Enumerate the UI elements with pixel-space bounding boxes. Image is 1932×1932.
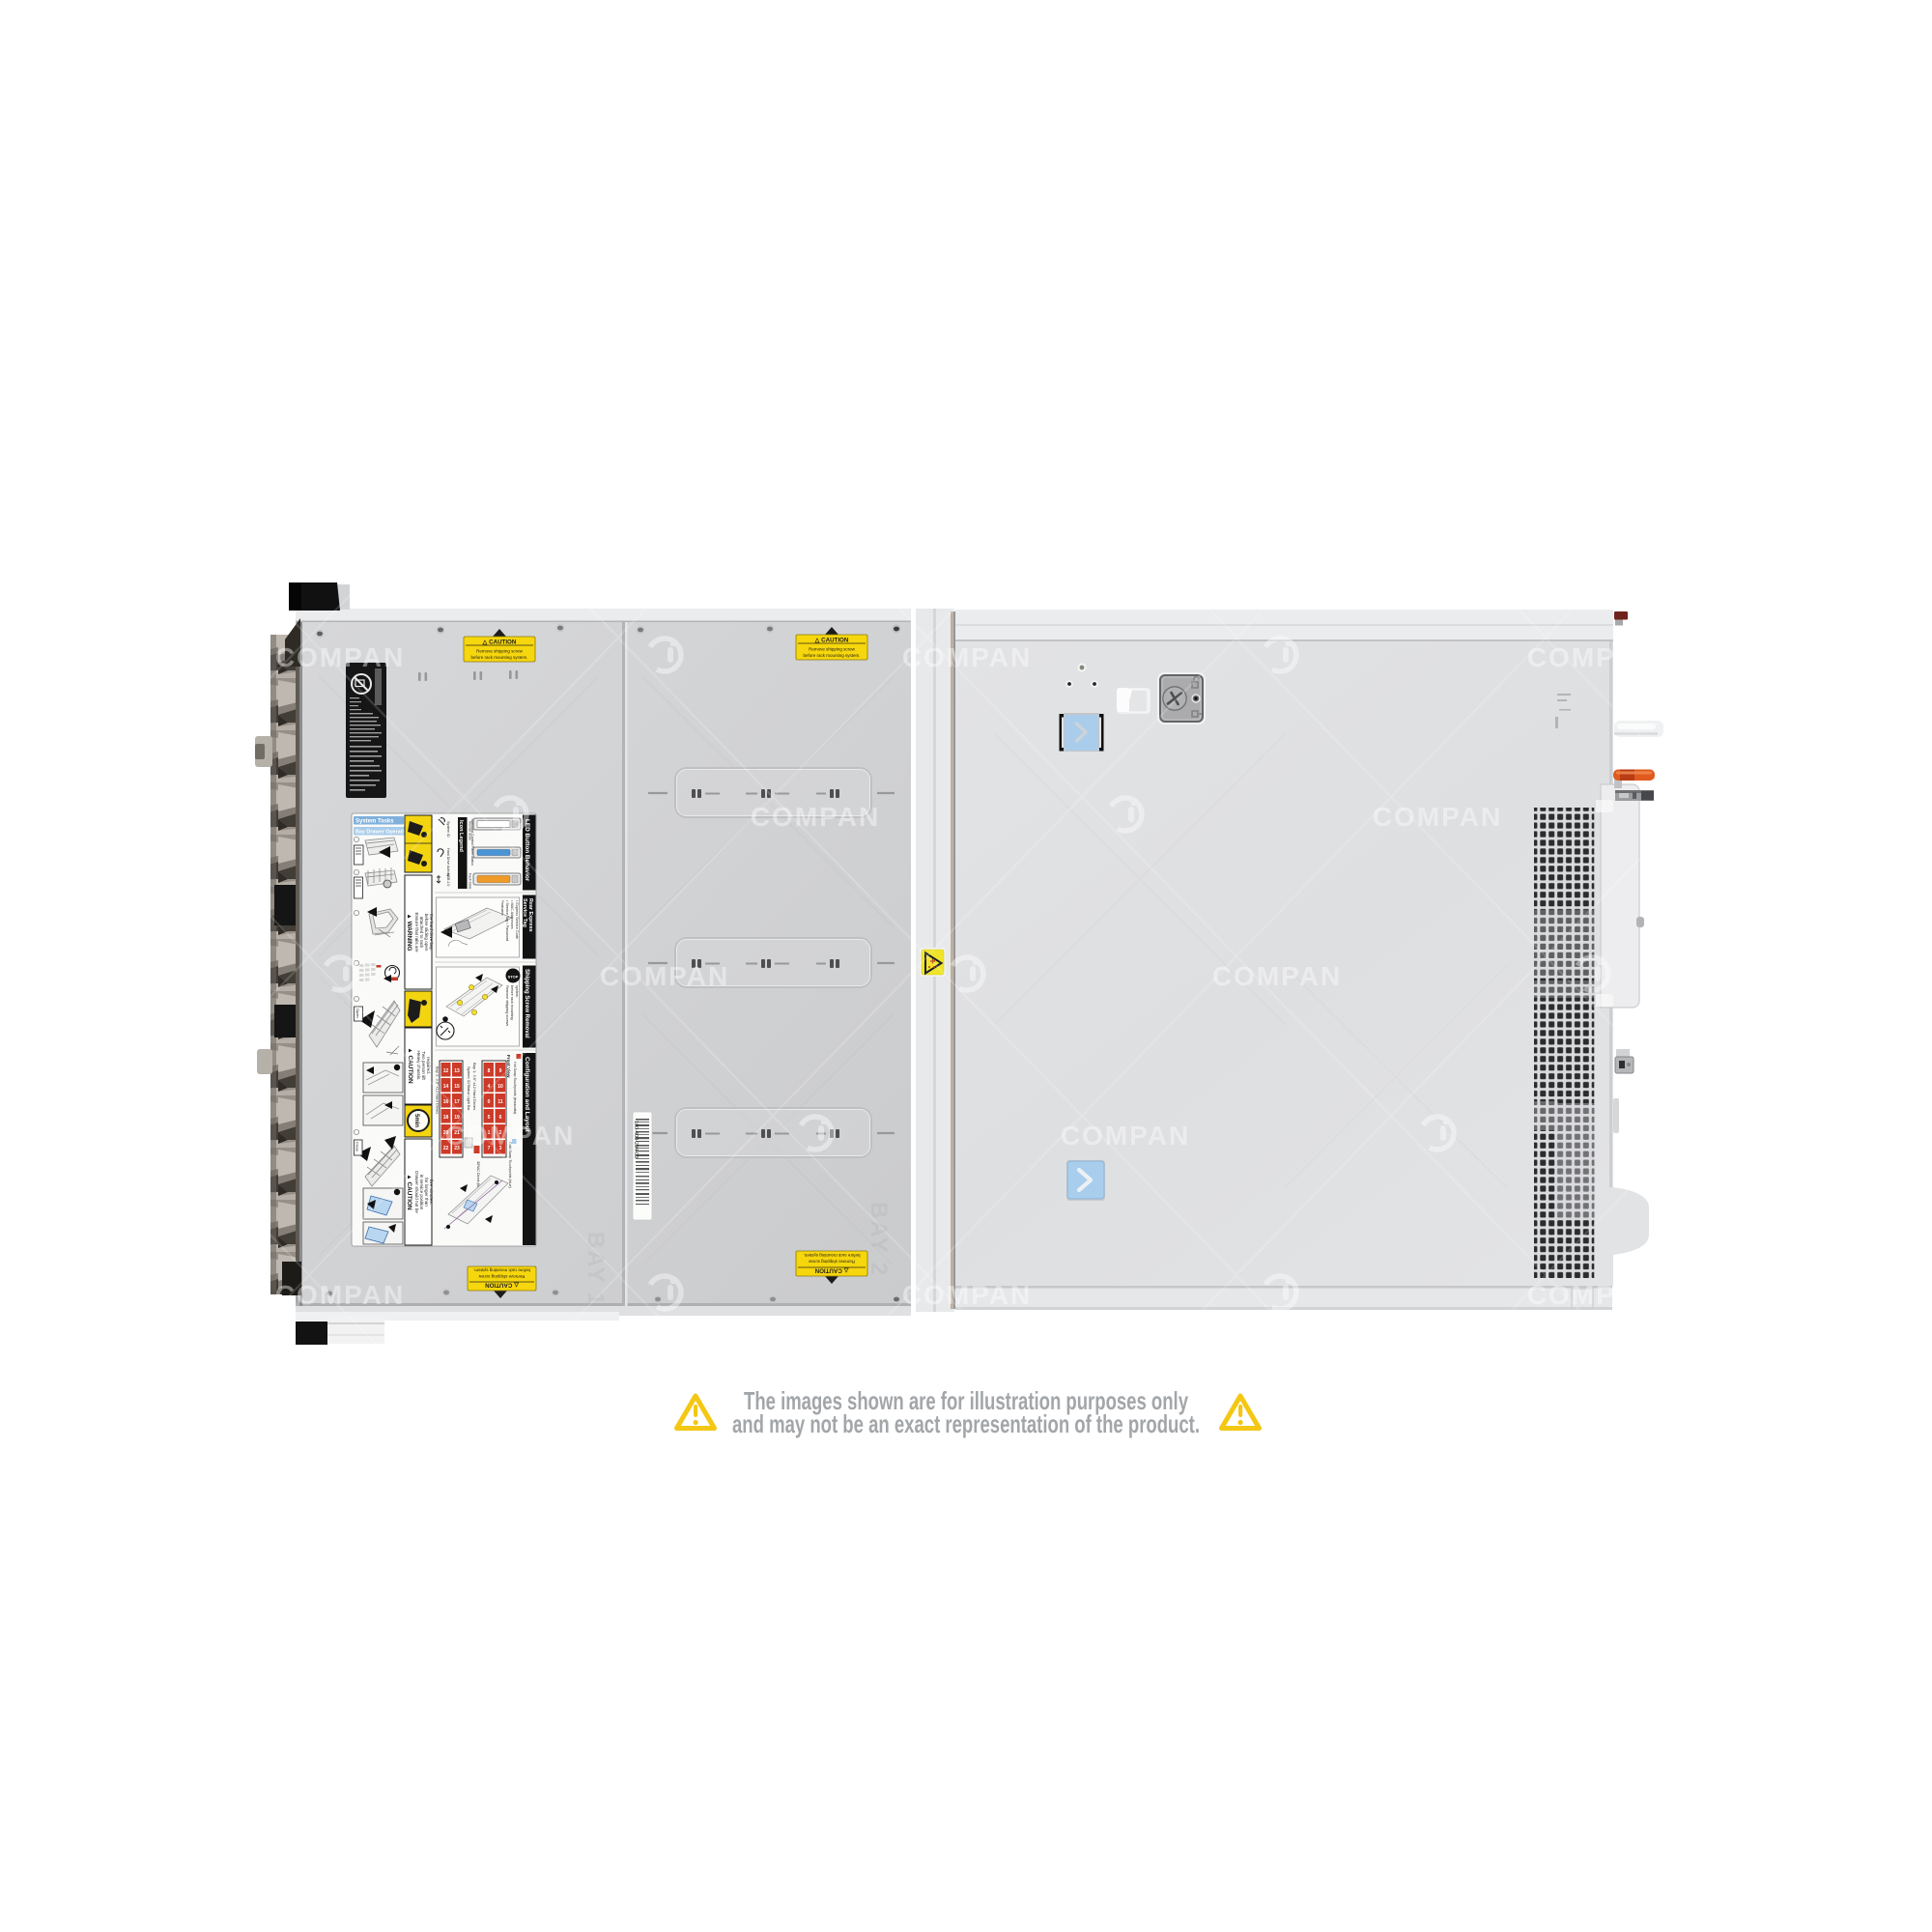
svg-text:and may not be an exact repres: and may not be an exact representation o… bbox=[732, 1409, 1200, 1438]
